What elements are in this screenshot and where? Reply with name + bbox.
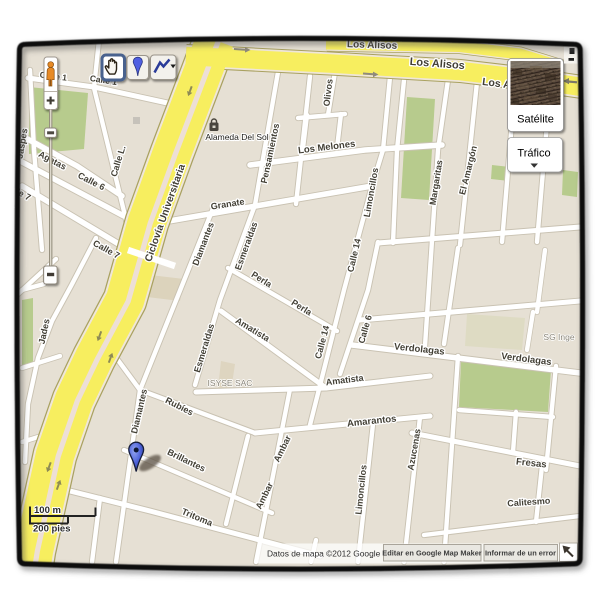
svg-text:Informar de un error: Informar de un error (485, 549, 556, 558)
svg-text:Alameda Del Sol: Alameda Del Sol (205, 132, 268, 142)
svg-text:Datos de mapa ©2012 Google -: Datos de mapa ©2012 Google - (267, 549, 386, 559)
svg-text:ISYSE SAC: ISYSE SAC (208, 378, 253, 388)
svg-text:200 pies: 200 pies (33, 524, 71, 535)
svg-text:SG Inge: SG Inge (543, 332, 574, 342)
svg-text:100 m: 100 m (34, 505, 61, 516)
svg-text:Satélite: Satélite (517, 114, 554, 126)
svg-text:Editar en Google Map Maker: Editar en Google Map Maker (382, 549, 482, 558)
svg-text:Tráfico: Tráfico (517, 148, 550, 160)
